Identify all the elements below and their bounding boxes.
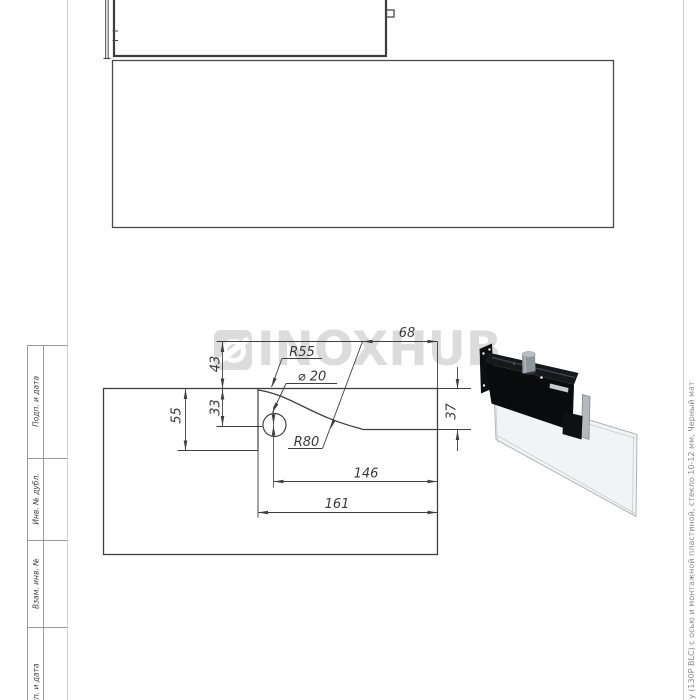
drawing-sheet: INOXHUB Подп. и дата Инв. № дубл. Взам. … bbox=[0, 0, 700, 700]
arrowhead-icon bbox=[221, 342, 225, 352]
cad-drawing: Подп. и дата Инв. № дубл. Взам. инв. № П… bbox=[0, 0, 700, 700]
arrowhead-icon bbox=[272, 415, 276, 425]
arrowhead-icon bbox=[428, 511, 438, 515]
dim-43: 43 bbox=[209, 356, 224, 373]
iso-render bbox=[480, 344, 638, 517]
title-block-cell-vzam-inv: Взам. инв. № bbox=[32, 558, 41, 609]
dim-146: 146 bbox=[354, 467, 379, 482]
arrowhead-icon bbox=[274, 480, 284, 484]
arrowhead-icon bbox=[272, 426, 276, 436]
arrowhead-icon bbox=[363, 340, 373, 344]
title-block-cell-podp2: Подп. и дата bbox=[32, 663, 41, 700]
dim-161: 161 bbox=[325, 497, 350, 512]
arrowhead-icon bbox=[184, 441, 188, 451]
dimension-arrowheads bbox=[184, 340, 460, 515]
title-block-cell-inv-dubl: Инв. № дубл. bbox=[32, 473, 41, 524]
dim-37: 37 bbox=[445, 403, 460, 420]
dim-r55: R55 bbox=[289, 345, 315, 360]
arrowhead-icon bbox=[456, 379, 460, 389]
arrowhead-icon bbox=[456, 430, 460, 440]
dim-33: 33 bbox=[209, 399, 224, 416]
dim-55: 55 bbox=[170, 407, 185, 424]
arrowhead-icon bbox=[258, 511, 268, 515]
sheet-frame bbox=[68, 0, 684, 700]
arrowhead-icon bbox=[271, 403, 278, 414]
top-view bbox=[104, 0, 614, 228]
arrowhead-icon bbox=[184, 389, 188, 399]
dim-hole: ⌀ 20 bbox=[298, 370, 327, 385]
dimension-labels: 68 R55 ⌀ 20 R80 43 33 55 37 146 161 bbox=[170, 326, 460, 512]
template-view-outline bbox=[104, 389, 438, 555]
arrowhead-icon bbox=[428, 480, 438, 484]
arrowhead-icon bbox=[428, 340, 438, 344]
arrowhead-icon bbox=[221, 416, 225, 426]
dim-r80: R80 bbox=[294, 435, 320, 450]
margin-note: у (130Р BLC) с осью и монтажной пластино… bbox=[687, 381, 696, 699]
arrowhead-icon bbox=[221, 390, 225, 400]
dim-68: 68 bbox=[399, 326, 416, 341]
title-block-cell-podp1: Подп. и дата bbox=[32, 376, 41, 427]
render-end-cap bbox=[582, 395, 591, 440]
arrowhead-icon bbox=[221, 379, 225, 389]
arrowhead-icon bbox=[270, 378, 277, 389]
